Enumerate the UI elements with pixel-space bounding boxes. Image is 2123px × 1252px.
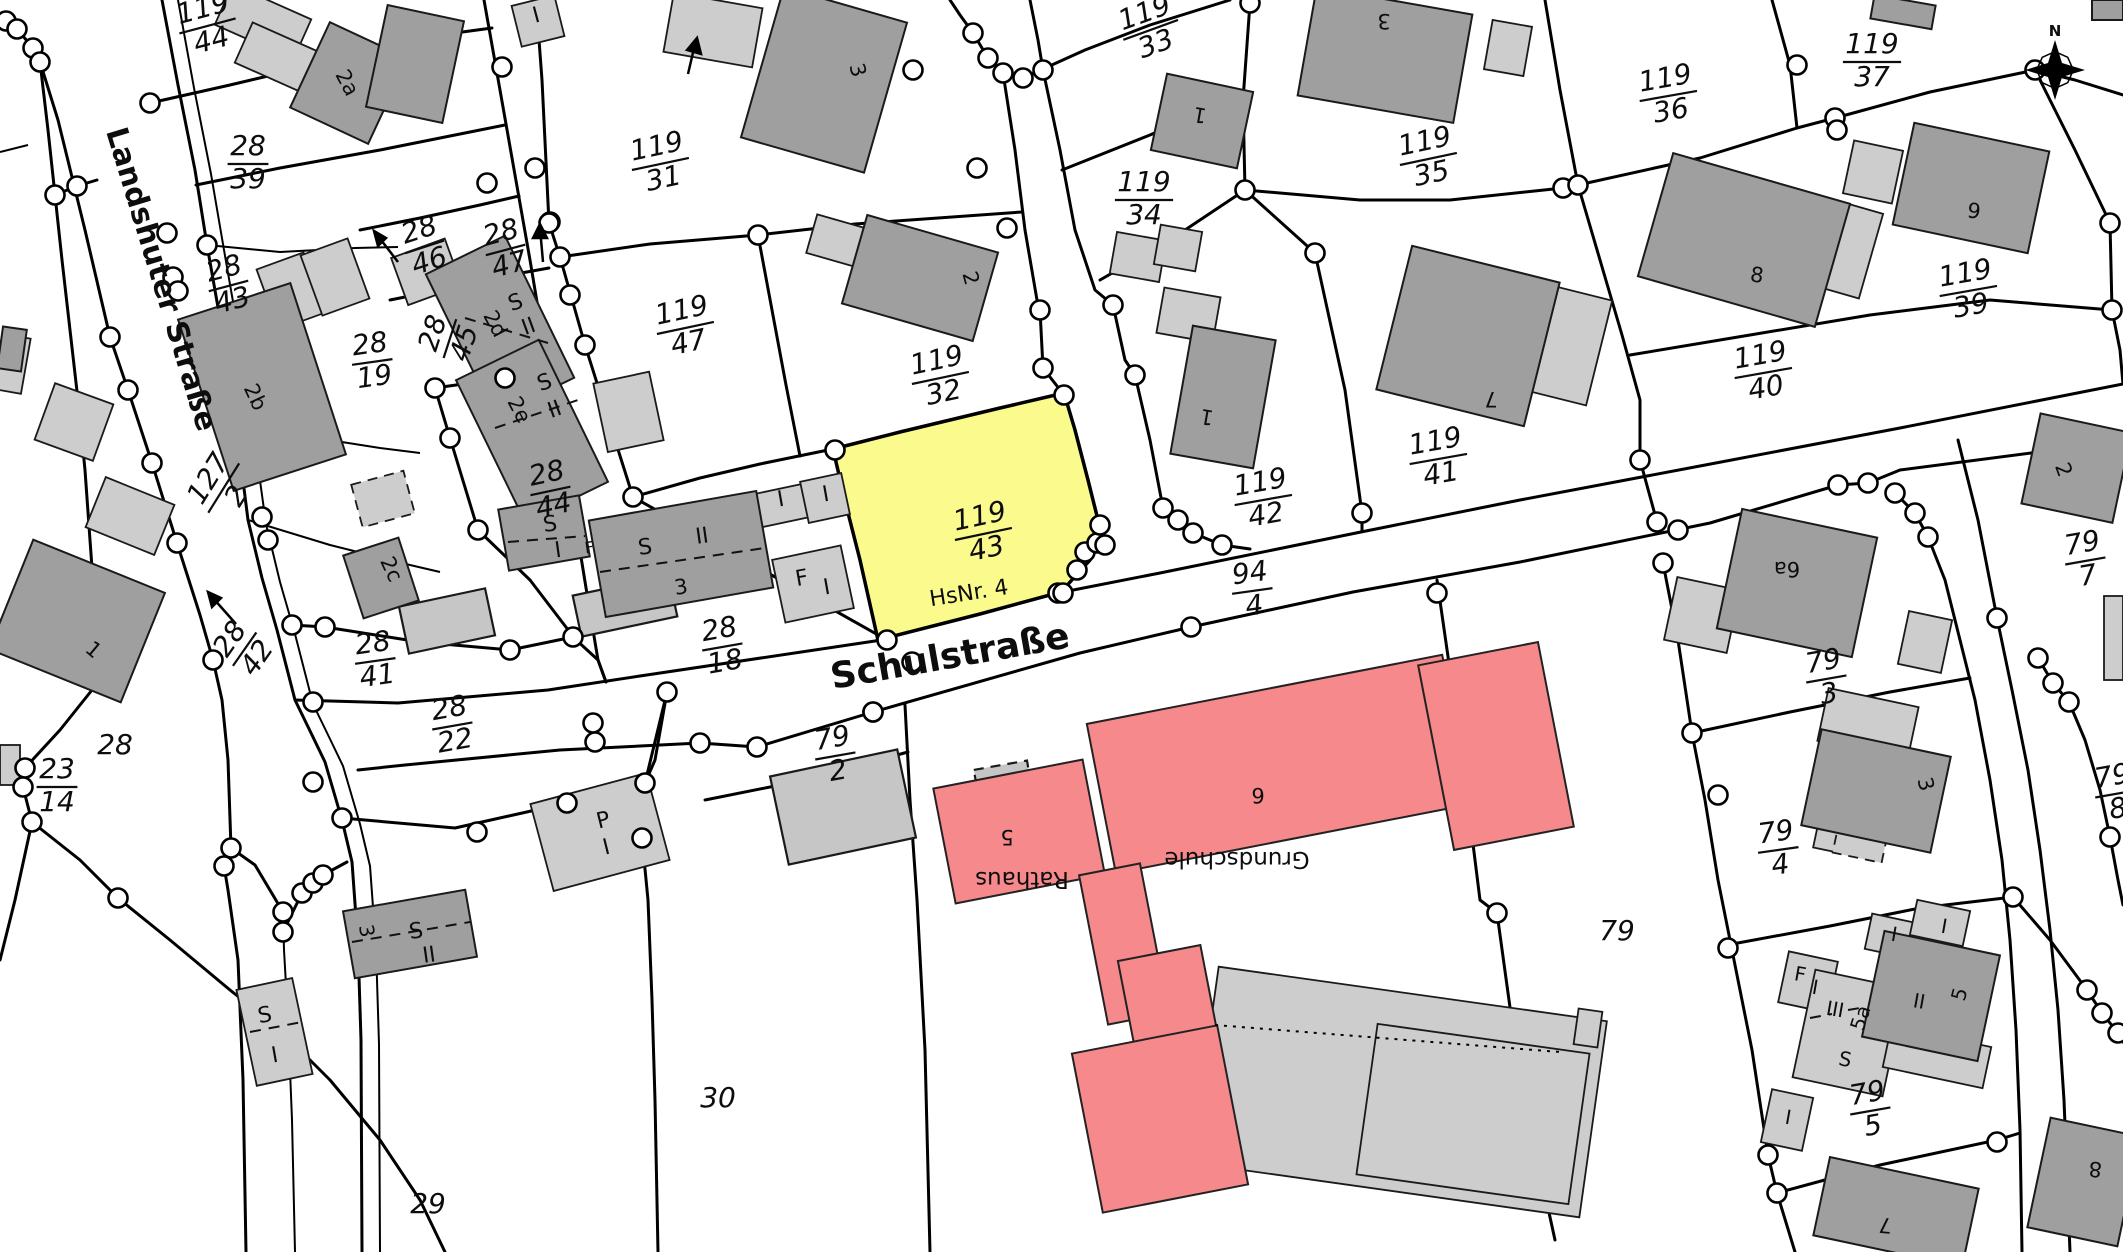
- building-name-grundschule: Grundschule: [1164, 846, 1309, 872]
- parcel-label-28-41: 2841: [350, 623, 400, 694]
- svg-text:41: 41: [357, 657, 397, 695]
- survey-point: [14, 778, 33, 797]
- survey-point: [253, 508, 272, 527]
- svg-text:22: 22: [434, 721, 475, 760]
- parcel-label-119-34: 11934: [1115, 165, 1173, 231]
- survey-point: [1988, 609, 2007, 628]
- parcel-label-28-18: 2818: [696, 609, 748, 681]
- parcel-label-119-41: 11941: [1404, 419, 1473, 494]
- parcel-label-119-33: 11933: [1111, 0, 1188, 69]
- survey-point: [691, 734, 710, 753]
- survey-point: [1091, 516, 1110, 535]
- parcel-label-28-22: 2822: [426, 688, 478, 760]
- survey-point: [1096, 536, 1115, 555]
- survey-point: [2060, 693, 2079, 712]
- map-label-28: 28: [97, 728, 133, 761]
- svg-text:28: 28: [230, 129, 266, 162]
- survey-point: [658, 683, 677, 702]
- parcel-label-119-32: 11932: [905, 338, 976, 415]
- svg-text:4: 4: [1769, 847, 1791, 882]
- survey-point: [1759, 1146, 1778, 1165]
- survey-point: [1569, 176, 1588, 195]
- svg-text:28: 28: [350, 325, 390, 363]
- survey-point: [979, 49, 998, 68]
- map-label-7: 7: [1484, 387, 1497, 411]
- svg-text:79: 79: [1803, 641, 1844, 680]
- cadastral-map-view: 1194428391193111933119341193511936119371…: [0, 0, 2123, 1252]
- svg-text:18: 18: [704, 642, 745, 681]
- survey-point: [283, 616, 302, 635]
- survey-point: [1859, 474, 1878, 493]
- survey-point: [551, 248, 570, 267]
- survey-point: [1886, 484, 1905, 503]
- survey-point: [478, 174, 497, 193]
- survey-point: [441, 429, 460, 448]
- survey-point: [468, 823, 487, 842]
- survey-point: [2101, 214, 2120, 233]
- map-label-7: 7: [1878, 1212, 1893, 1237]
- svg-text:5: 5: [1861, 1107, 1884, 1143]
- survey-point: [2078, 981, 2097, 1000]
- survey-point: [274, 923, 293, 942]
- survey-point: [1631, 451, 1650, 470]
- map-label-5: 5: [1000, 825, 1013, 849]
- survey-point: [998, 219, 1017, 238]
- survey-point: [304, 773, 323, 792]
- survey-point: [501, 641, 520, 660]
- svg-text:14: 14: [39, 785, 75, 818]
- survey-point: [624, 488, 643, 507]
- survey-point: [1654, 554, 1673, 573]
- survey-point: [826, 441, 845, 460]
- parcel-label-119-42: 11942: [1229, 460, 1298, 535]
- parcel-label-79-5: 795: [1844, 1073, 1896, 1145]
- survey-point: [1829, 476, 1848, 495]
- svg-text:31: 31: [643, 158, 685, 198]
- svg-text:36: 36: [1650, 91, 1691, 130]
- survey-point: [1788, 56, 1807, 75]
- survey-point: [222, 839, 241, 858]
- svg-text:35: 35: [1411, 153, 1453, 193]
- survey-point: [2004, 888, 2023, 907]
- survey-point: [101, 328, 120, 347]
- parcel-label-119-31: 11931: [625, 124, 696, 201]
- survey-point: [493, 58, 512, 77]
- map-label-29: 29: [410, 1187, 446, 1220]
- survey-point: [1213, 536, 1232, 555]
- map-label-6a: 6a: [1774, 557, 1800, 581]
- svg-text:79: 79: [1756, 813, 1796, 851]
- survey-point: [633, 829, 652, 848]
- survey-point: [1919, 528, 1938, 547]
- parcel-label-119-37: 11937: [1843, 27, 1901, 93]
- svg-text:7: 7: [2076, 557, 2099, 593]
- survey-point: [1768, 1184, 1787, 1203]
- survey-point: [1034, 359, 1053, 378]
- survey-point: [198, 236, 217, 255]
- survey-point: [496, 369, 515, 388]
- survey-point: [994, 64, 1013, 83]
- svg-text:28: 28: [353, 624, 393, 662]
- survey-point: [1241, 0, 1260, 13]
- survey-point: [2103, 301, 2122, 320]
- svg-text:39: 39: [1950, 286, 1991, 325]
- survey-point: [316, 618, 335, 637]
- survey-point: [558, 794, 577, 813]
- survey-point: [584, 714, 603, 733]
- survey-point: [304, 693, 323, 712]
- map-label-6: 6: [1251, 783, 1264, 807]
- parcel-label-79-4: 794: [1753, 812, 1803, 883]
- survey-point: [1353, 504, 1372, 523]
- building-name-rathaus: Rathaus: [975, 866, 1069, 892]
- survey-point: [2044, 674, 2063, 693]
- svg-text:119: 119: [1845, 27, 1898, 60]
- survey-point: [1126, 366, 1145, 385]
- survey-point: [333, 809, 352, 828]
- survey-point: [586, 733, 605, 752]
- survey-point: [469, 521, 488, 540]
- survey-point: [964, 24, 983, 43]
- svg-text:4: 4: [1243, 588, 1265, 623]
- survey-point: [968, 159, 987, 178]
- svg-text:47: 47: [668, 322, 710, 362]
- survey-point: [1068, 561, 1087, 580]
- survey-point: [1683, 724, 1702, 743]
- survey-point: [314, 866, 333, 885]
- north-letter: N: [2049, 22, 2062, 40]
- survey-point: [16, 759, 35, 778]
- svg-text:94: 94: [1230, 554, 1270, 592]
- svg-text:79: 79: [2092, 756, 2123, 795]
- map-label-8: 8: [2088, 1156, 2103, 1181]
- parcel-label-28-19: 2819: [347, 324, 397, 395]
- survey-point: [1988, 1133, 2007, 1152]
- svg-text:8: 8: [2106, 790, 2123, 826]
- survey-point: [426, 379, 445, 398]
- survey-point: [109, 889, 128, 908]
- survey-point: [748, 738, 767, 757]
- parcel-label-79-7: 797: [2059, 523, 2111, 595]
- parcel-label-119-35: 11935: [1393, 119, 1464, 196]
- survey-point: [2029, 649, 2048, 668]
- parcel-label-119-36: 11936: [1634, 56, 1703, 131]
- survey-point: [1709, 786, 1728, 805]
- survey-point: [1184, 524, 1203, 543]
- survey-point: [143, 454, 162, 473]
- map-canvas: 1194428391193111933119341193511936119371…: [0, 0, 2123, 1252]
- survey-point: [526, 159, 545, 178]
- map-label-79: 79: [1599, 914, 1635, 947]
- parcel-label-119-40: 11940: [1729, 333, 1798, 408]
- svg-text:19: 19: [354, 358, 394, 396]
- survey-point: [1182, 618, 1201, 637]
- survey-point: [168, 534, 187, 553]
- survey-point: [46, 186, 65, 205]
- survey-point: [1828, 121, 1847, 140]
- survey-point: [1014, 69, 1033, 88]
- survey-point: [119, 381, 138, 400]
- svg-text:42: 42: [1245, 495, 1286, 534]
- survey-point: [68, 177, 87, 196]
- survey-point: [8, 20, 27, 39]
- parcel-label-94-4: 944: [1227, 553, 1277, 624]
- survey-point: [215, 857, 234, 876]
- svg-text:40: 40: [1745, 368, 1786, 407]
- map-label-3: 3: [1377, 9, 1390, 33]
- svg-text:79: 79: [812, 718, 853, 757]
- survey-point: [1034, 61, 1053, 80]
- survey-point: [1669, 521, 1688, 540]
- survey-point: [749, 226, 768, 245]
- svg-text:34: 34: [1126, 198, 1162, 231]
- svg-text:39: 39: [230, 162, 266, 195]
- survey-point: [1031, 301, 1050, 320]
- survey-point: [1104, 296, 1123, 315]
- svg-text:23: 23: [39, 752, 75, 785]
- survey-point: [2109, 1024, 2123, 1043]
- parcel-label-28-39: 2839: [228, 129, 269, 195]
- svg-text:32: 32: [923, 372, 965, 412]
- survey-point: [1648, 513, 1667, 532]
- survey-point: [2101, 828, 2120, 847]
- survey-point: [1906, 504, 1925, 523]
- svg-text:79: 79: [2062, 523, 2103, 562]
- survey-point: [31, 53, 50, 72]
- parcel-label-119-47: 11947: [650, 288, 721, 365]
- survey-point: [564, 628, 583, 647]
- survey-point: [864, 703, 883, 722]
- survey-point: [1236, 181, 1255, 200]
- parcel-label-23-14: 2314: [37, 752, 78, 818]
- street-name-landshuter: Landshuter Straße: [98, 123, 224, 435]
- survey-point: [1428, 584, 1447, 603]
- survey-point: [141, 94, 160, 113]
- survey-point: [2093, 1004, 2112, 1023]
- survey-point: [1054, 584, 1073, 603]
- parcel-label-119-39: 11939: [1934, 251, 2003, 326]
- survey-point: [1306, 244, 1325, 263]
- survey-point: [561, 286, 580, 305]
- survey-point: [259, 531, 278, 550]
- survey-point: [576, 336, 595, 355]
- map-label-30: 30: [700, 1081, 736, 1114]
- svg-text:37: 37: [1854, 60, 1890, 93]
- survey-point: [274, 903, 293, 922]
- svg-text:41: 41: [1420, 454, 1461, 493]
- survey-point: [1488, 904, 1507, 923]
- svg-text:79: 79: [1847, 1073, 1888, 1112]
- survey-point: [1055, 386, 1074, 405]
- survey-point: [904, 61, 923, 80]
- survey-point: [1719, 939, 1738, 958]
- svg-text:119: 119: [1117, 165, 1170, 198]
- north-arrow-icon: [2025, 40, 2085, 100]
- survey-point: [636, 774, 655, 793]
